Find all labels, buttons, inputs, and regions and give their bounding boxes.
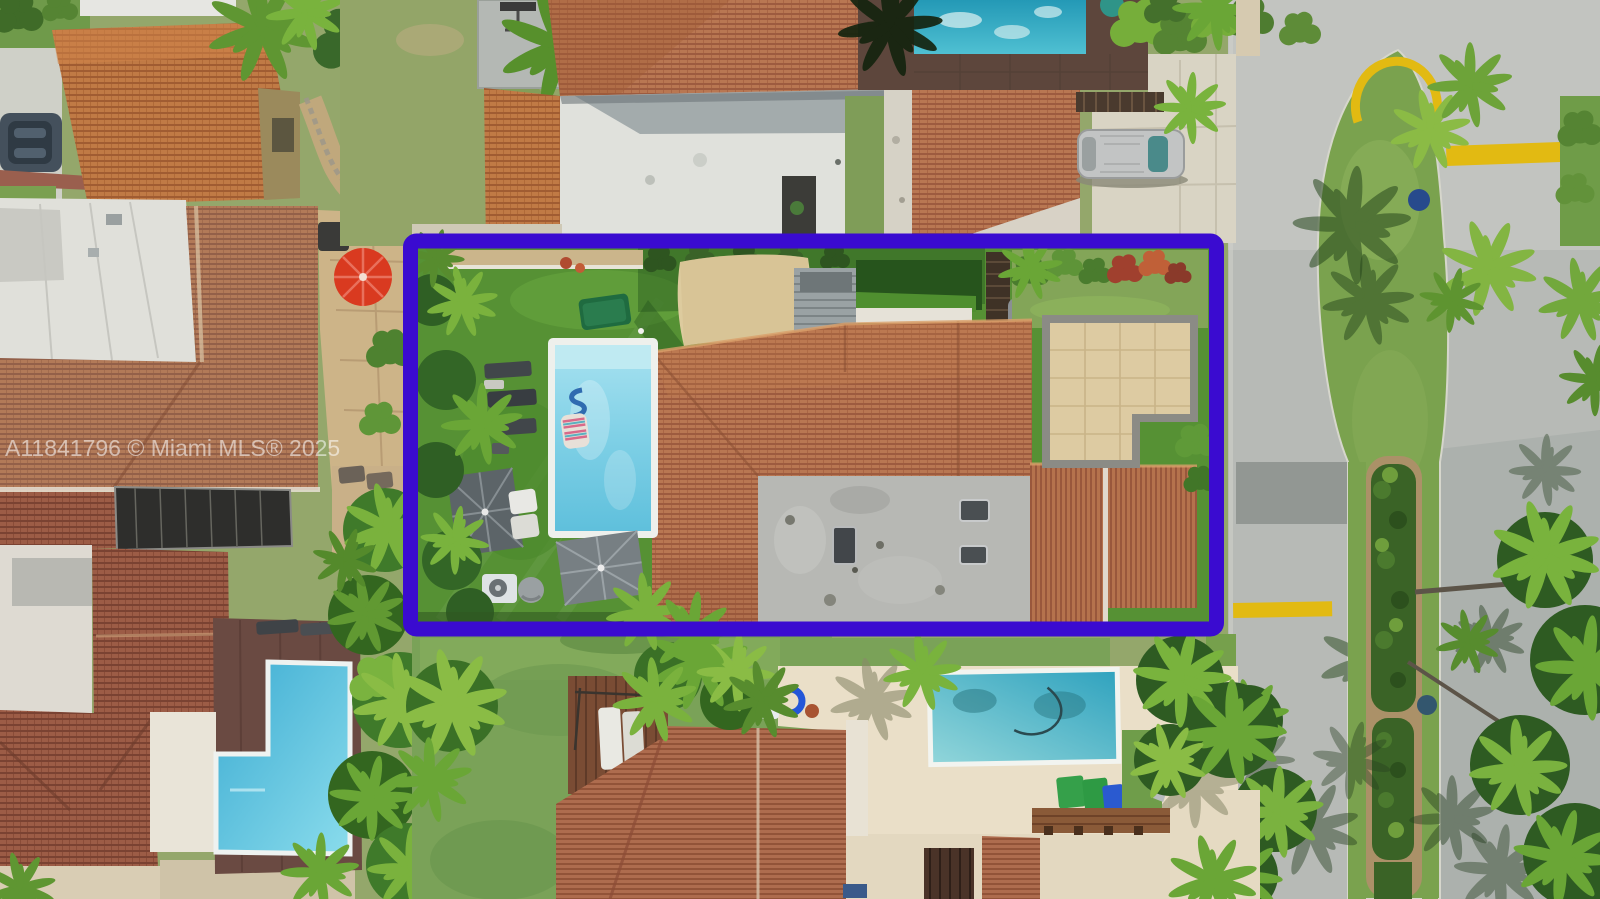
svg-text:A11841796 © Miami MLS® 2025: A11841796 © Miami MLS® 2025 — [5, 435, 340, 461]
